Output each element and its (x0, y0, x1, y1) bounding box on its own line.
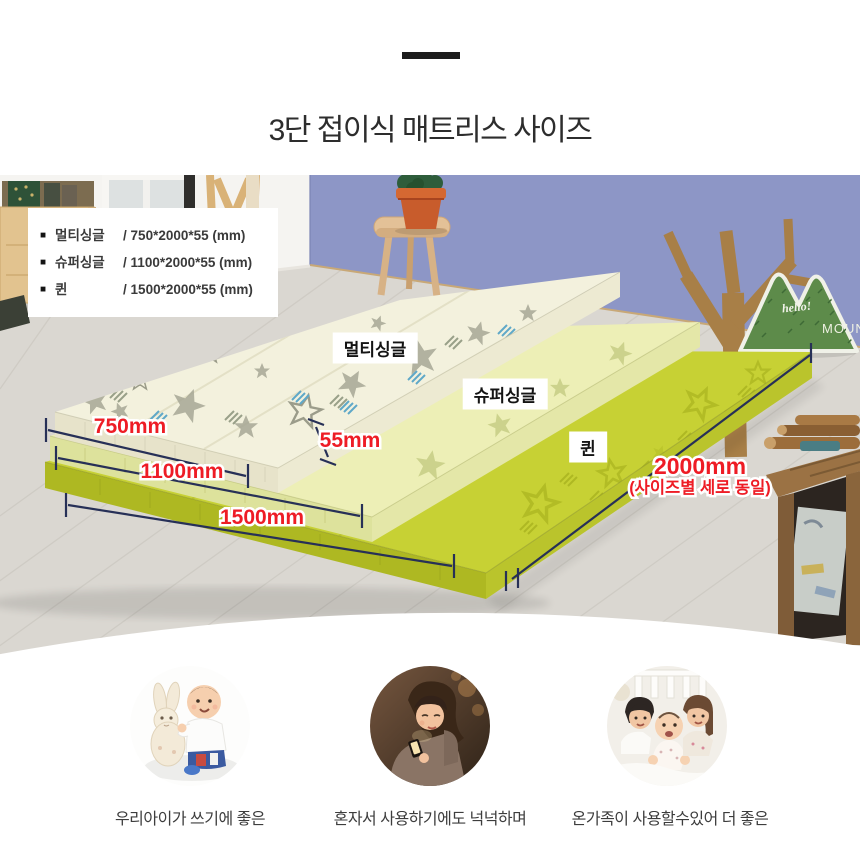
size-name: 멀티싱글 (55, 222, 123, 249)
label-super-single: 슈퍼싱글 (463, 379, 548, 410)
crate-book (787, 507, 850, 616)
size-row-multi: ■ 멀티싱글 / 750*2000*55 (mm) (40, 222, 266, 249)
bullet-icon: ■ (40, 276, 46, 303)
title-accent-bar (402, 52, 460, 59)
feature-caption-baby: 우리아이가 쓰기에 좋은 (115, 805, 265, 829)
dim-label-2000-note: (사이즈별 세로 동일) (629, 478, 771, 497)
size-row-super: ■ 슈퍼싱글 / 1100*2000*55 (mm) (40, 249, 266, 276)
woman-with-phone-illustration (370, 666, 490, 786)
crate-cloth (800, 441, 840, 451)
dim-label-1100: 1100mm (141, 460, 224, 483)
size-spec: / 1100*2000*55 (mm) (123, 249, 252, 276)
feature-caption-family: 온가족이 사용할수있어 더 좋은 (572, 805, 769, 829)
product-detail-page: 3단 접이식 매트리스 사이즈 (0, 0, 860, 858)
feature-photo-woman (370, 666, 490, 786)
cushion-text-mountain: MOUNTAIN (822, 321, 860, 336)
size-spec: / 1500*2000*55 (mm) (123, 276, 253, 303)
size-row-queen: ■ 퀸 / 1500*2000*55 (mm) (40, 276, 266, 303)
bullet-icon: ■ (40, 249, 46, 276)
feature-photo-baby (130, 666, 250, 786)
product-photo: hello! MOUNTAIN (0, 175, 860, 660)
family-illustration (607, 666, 727, 786)
page-title: 3단 접이식 매트리스 사이즈 (0, 105, 860, 149)
label-queen: 퀸 (569, 432, 607, 463)
dim-label-1500: 1500mm (220, 506, 304, 529)
size-info-box: ■ 멀티싱글 / 750*2000*55 (mm) ■ 슈퍼싱글 / 1100*… (28, 208, 278, 317)
feature-photo-family (607, 666, 727, 786)
dim-label-750: 750mm (94, 415, 166, 438)
size-name: 슈퍼싱글 (55, 249, 123, 276)
bullet-icon: ■ (40, 222, 46, 249)
flowers (612, 683, 630, 701)
label-multi-single: 멀티싱글 (333, 333, 418, 364)
size-name: 퀸 (55, 276, 123, 303)
dim-label-55: 55mm (320, 429, 381, 452)
size-spec: / 750*2000*55 (mm) (123, 222, 245, 249)
baby-with-rabbit-illustration (130, 666, 250, 786)
feature-caption-woman: 혼자서 사용하기에도 넉넉하며 (334, 805, 527, 829)
dim-label-2000: 2000mm (654, 453, 746, 479)
